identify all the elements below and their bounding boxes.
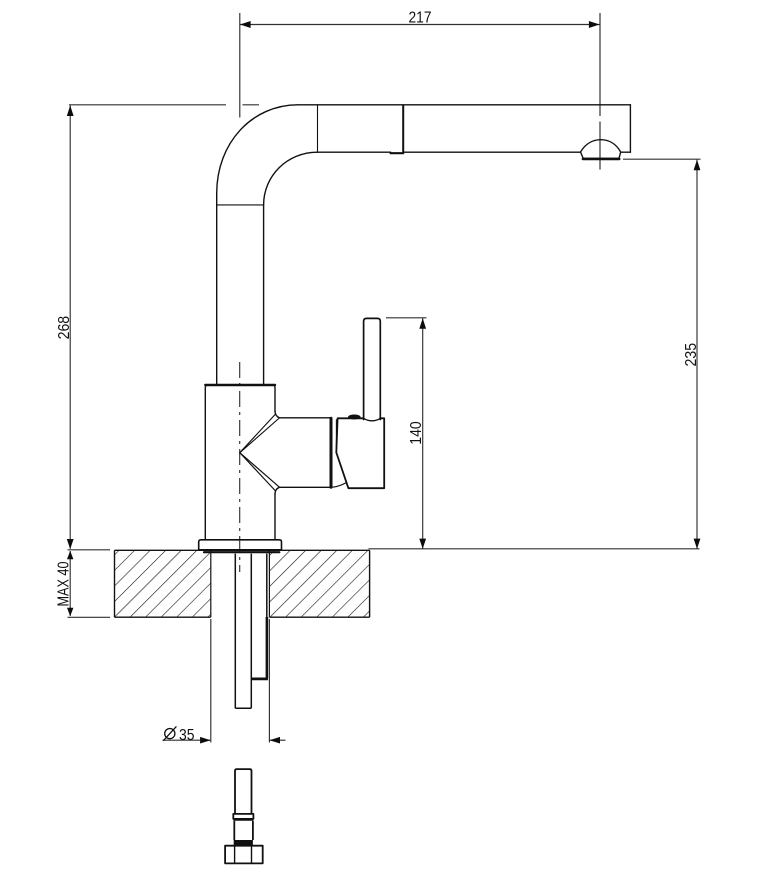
svg-text:268: 268: [56, 316, 73, 340]
svg-text:235: 235: [683, 343, 700, 367]
svg-text:MAX 40: MAX 40: [55, 561, 72, 606]
svg-text:217: 217: [409, 10, 432, 27]
svg-text:140: 140: [408, 421, 425, 445]
svg-text:35: 35: [179, 727, 195, 744]
